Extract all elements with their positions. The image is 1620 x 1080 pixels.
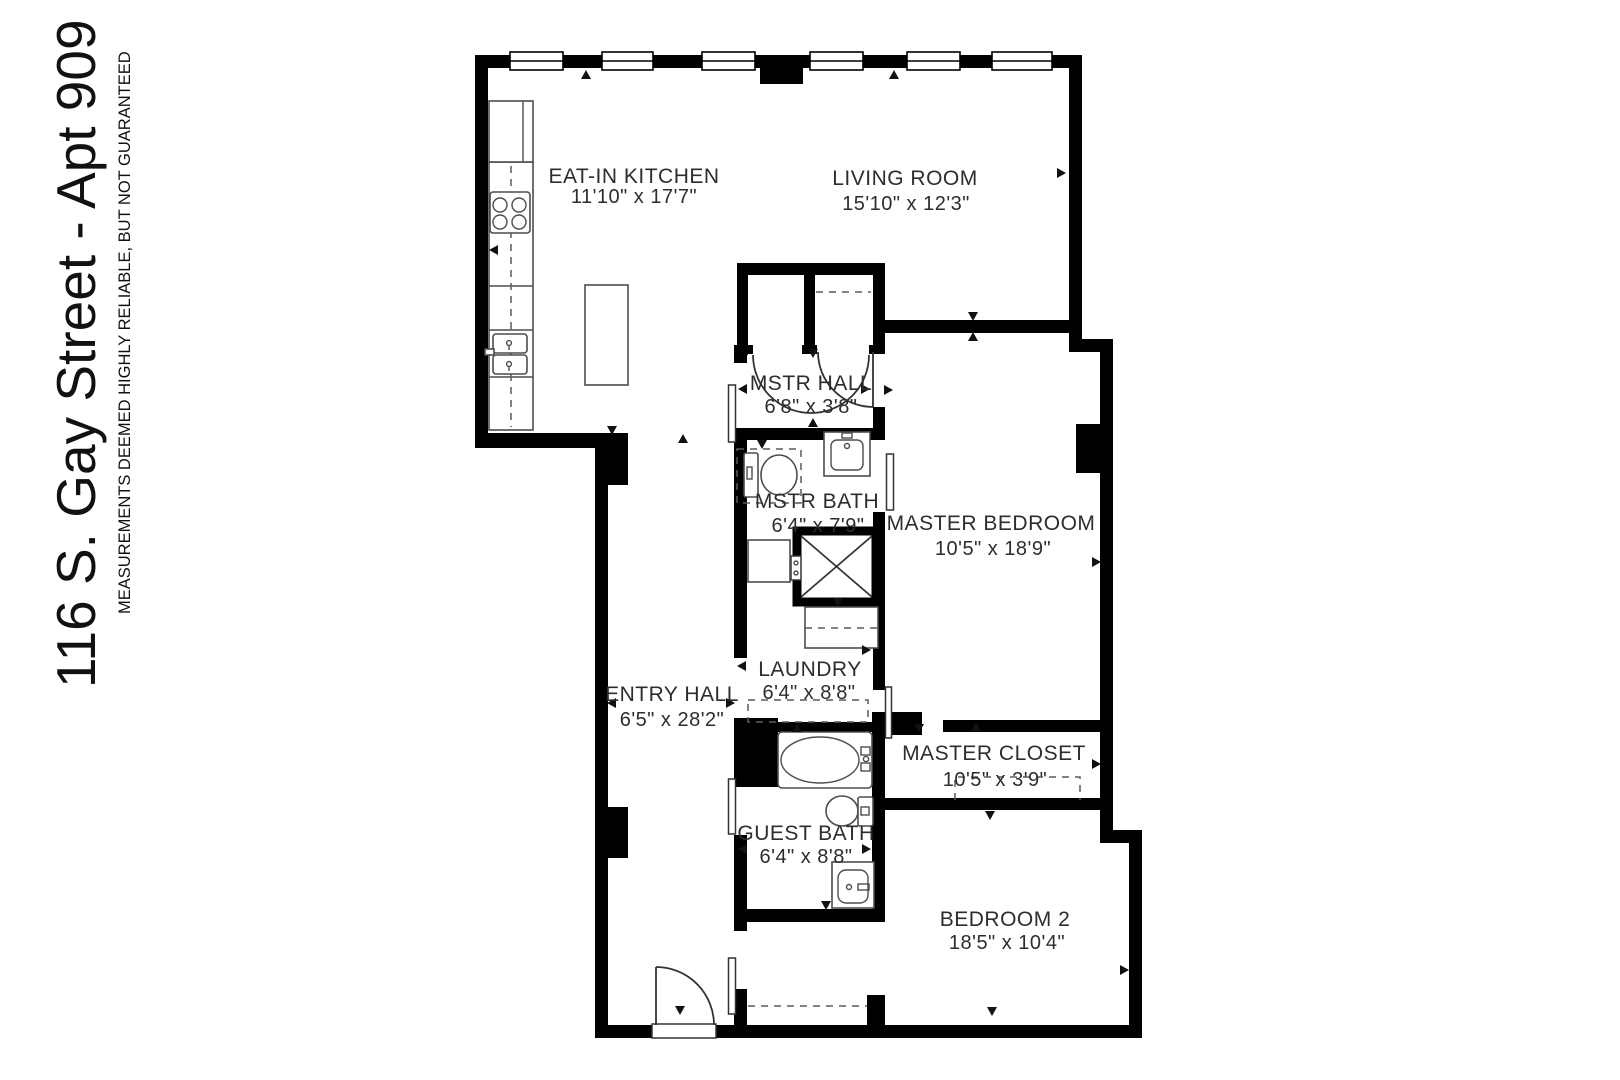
room-label-bedroom-2: BEDROOM 2 (940, 908, 1071, 931)
room-dims-master-bedroom: 10'5" x 18'9" (935, 538, 1051, 560)
room-dims-mstr-bath: 6'4" x 7'9" (772, 515, 865, 537)
pocket-door (729, 958, 736, 1014)
floor-plan-canvas: 116 S. Gay Street - Apt 909 MEASUREMENTS… (0, 0, 1620, 1080)
fridge-icon (489, 101, 533, 162)
kitchen-island (585, 285, 628, 385)
room-label-master-closet: MASTER CLOSET (902, 742, 1086, 765)
room-dims-master-closet: 10'5" x 3'9" (943, 769, 1048, 791)
page-title: 116 S. Gay Street - Apt 909 (45, 19, 107, 688)
guest-bath-fixtures (778, 732, 874, 908)
stove-icon (490, 192, 530, 233)
room-label-laundry: LAUNDRY (758, 658, 861, 681)
washer-dryer-icon (805, 607, 878, 648)
window-icon (992, 52, 1052, 70)
room-dims-bedroom-2: 18'5" x 10'4" (949, 932, 1065, 954)
disclaimer: MEASUREMENTS DEEMED HIGHLY RELIABLE, BUT… (116, 51, 134, 614)
window-icon (907, 52, 960, 70)
bathroom-sink-icon (832, 862, 874, 908)
room-label-guest-bath: GUEST BATH (737, 822, 874, 845)
pocket-door (729, 385, 736, 442)
room-dims-laundry: 6'4" x 8'8" (763, 682, 856, 704)
room-label-mstr-hall: MSTR HALL (750, 372, 872, 395)
entry-door (652, 967, 716, 1038)
room-label-entry-hall: ENTRY HALL (605, 683, 739, 706)
bath-cabinet (748, 540, 790, 582)
room-dims-living-room: 15'10" x 12'3" (842, 193, 970, 215)
pocket-door (886, 687, 892, 738)
bathroom-sink-icon (824, 432, 870, 476)
room-dims-mstr-hall: 6'8" x 3'8" (765, 396, 858, 418)
room-label-living-room: LIVING ROOM (832, 167, 978, 190)
room-dims-guest-bath: 6'4" x 8'8" (760, 846, 853, 868)
room-dims-kitchen: 11'10" x 17'7" (571, 186, 697, 208)
room-label-kitchen: EAT-IN KITCHEN (548, 165, 719, 188)
room-label-master-bedroom: MASTER BEDROOM (887, 512, 1096, 535)
window-icon (602, 52, 653, 70)
kitchen-fixtures (485, 101, 628, 430)
room-label-mstr-bath: MSTR BATH (755, 490, 879, 513)
bathtub-icon (778, 732, 872, 788)
room-dims-entry-hall: 6'5" x 28'2" (620, 709, 725, 731)
pocket-door (887, 454, 894, 510)
window-icon (702, 52, 755, 70)
window-icon (810, 52, 863, 70)
floor-plan-page: 116 S. Gay Street - Apt 909 MEASUREMENTS… (0, 0, 1620, 1080)
pocket-door (729, 779, 736, 834)
shower-icon (791, 531, 876, 602)
window-icon (510, 52, 563, 70)
